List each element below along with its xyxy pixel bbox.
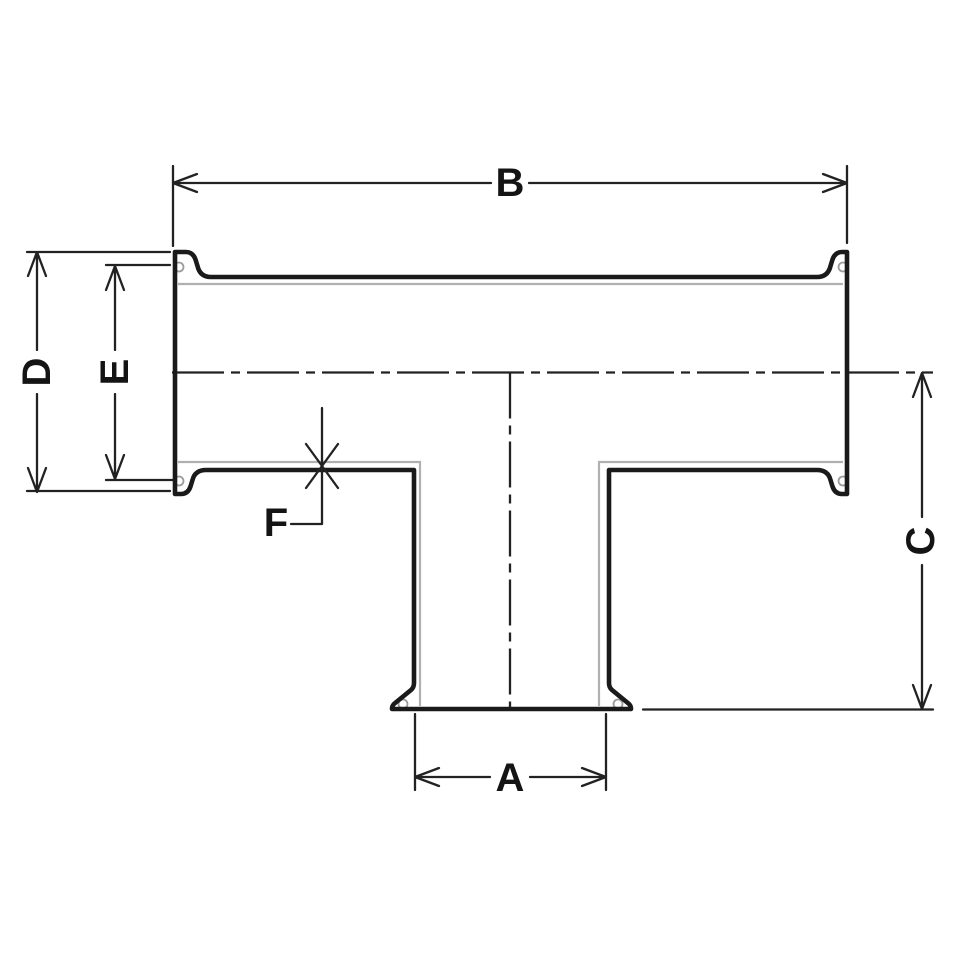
- dimension-label-e: E: [93, 359, 137, 386]
- dimension-label-f: F: [264, 501, 288, 545]
- dimension-label-c: C: [899, 527, 943, 556]
- dimension-label-b: B: [496, 161, 525, 205]
- dimension-label-a: A: [496, 756, 525, 800]
- drawing-canvas: B D E C A F: [0, 0, 960, 960]
- tee-fitting-diagram: B D E C A F: [0, 0, 960, 960]
- dimension-label-d: D: [15, 358, 59, 387]
